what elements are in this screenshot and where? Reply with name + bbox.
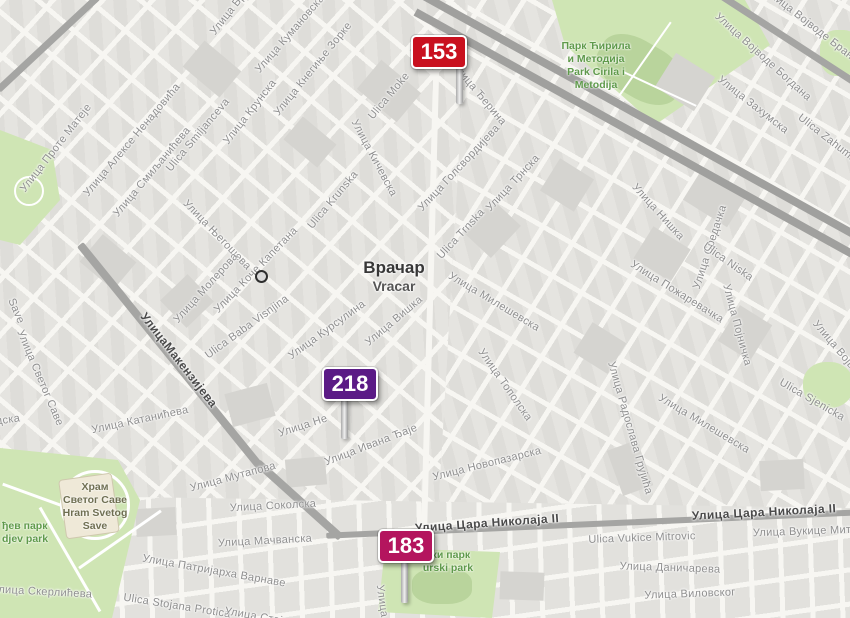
marker-pole: [456, 66, 463, 104]
map-canvas[interactable]: Улица Проте Матеје Улица Алексе Ненадови…: [0, 0, 850, 618]
park-label-karadjordjev: ђев парк djev park: [2, 520, 48, 546]
building: [285, 456, 327, 487]
marker-pole: [341, 398, 348, 439]
map-marker-218[interactable]: 218: [322, 367, 378, 401]
marker-pole: [401, 560, 408, 603]
park-label-cirila-metodija: Парк Ћирила и Методија Park Cirila i Met…: [562, 40, 631, 92]
poi-label-hram-svetog-save: Храм Светог Саве Hram Svetog Save: [63, 481, 128, 533]
park-label-line: Парк Ћирила: [562, 40, 631, 53]
park-label-line: ђев парк: [2, 520, 48, 533]
park-label-line: djev park: [2, 533, 48, 546]
park-label-line: Metodija: [562, 79, 631, 92]
map-point-marker[interactable]: [255, 270, 268, 283]
district-label-vracar: Врачар Vracar: [363, 258, 424, 294]
park-label-line: urski park: [423, 562, 473, 575]
district-name-cyrillic: Врачар: [363, 258, 424, 278]
park-label-line: и Методија: [562, 53, 631, 66]
poi-label-line: Светог Саве: [63, 494, 128, 507]
park-label-line: Park Cirila i: [562, 66, 631, 79]
map-marker-153[interactable]: 153: [411, 35, 467, 69]
map-marker-183[interactable]: 183: [378, 529, 434, 563]
poi-label-line: Hram Svetog: [63, 507, 128, 520]
building: [759, 459, 805, 491]
building: [500, 571, 545, 601]
district-name-latin: Vracar: [363, 278, 424, 294]
poi-label-line: Save: [63, 520, 128, 533]
poi-label-line: Храм: [63, 481, 128, 494]
